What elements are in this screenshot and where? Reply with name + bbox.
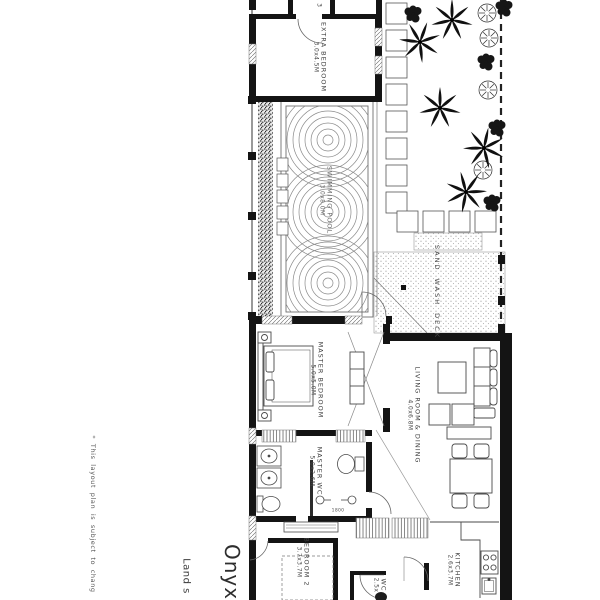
- project-title: Onyx: [220, 544, 244, 600]
- disclaimer-bullet: *: [89, 435, 97, 439]
- pool-ripples: [281, 93, 375, 330]
- bench-symbol: [284, 522, 338, 532]
- paver-path: [386, 3, 496, 232]
- vanity-basins: [257, 446, 281, 488]
- sofa-symbol: [474, 348, 497, 418]
- sand-wash-deck-area: [374, 233, 505, 333]
- dresser-symbol: [350, 352, 364, 404]
- disclaimer-text: This layout plan is subject to chang: [89, 444, 97, 593]
- floor-plan: 3 EXTRA BEDROOM 3.0x4.5M SWIMMING POOL 3…: [0, 0, 600, 600]
- dining-set-symbol: [450, 444, 492, 508]
- swimming-pool: [281, 93, 377, 330]
- planting-strip: [258, 100, 273, 316]
- bedroom2-ceiling-line: [282, 556, 333, 600]
- shower-heads: [316, 496, 356, 504]
- shower-dimension: 1800: [332, 509, 345, 514]
- disclaimer-note: * This layout plan is subject to chang: [89, 435, 97, 592]
- pool-steps: [277, 158, 288, 235]
- toilet-2-symbol: [338, 455, 365, 474]
- wc2-toilet: [375, 592, 387, 600]
- top-room-number: 3: [316, 3, 323, 7]
- kitchen-counter: [430, 522, 499, 598]
- land-size-label: Land s: [181, 558, 192, 594]
- toilet-symbol: [257, 496, 280, 512]
- bed-symbol: [258, 332, 313, 421]
- garden-plants: [394, 0, 513, 216]
